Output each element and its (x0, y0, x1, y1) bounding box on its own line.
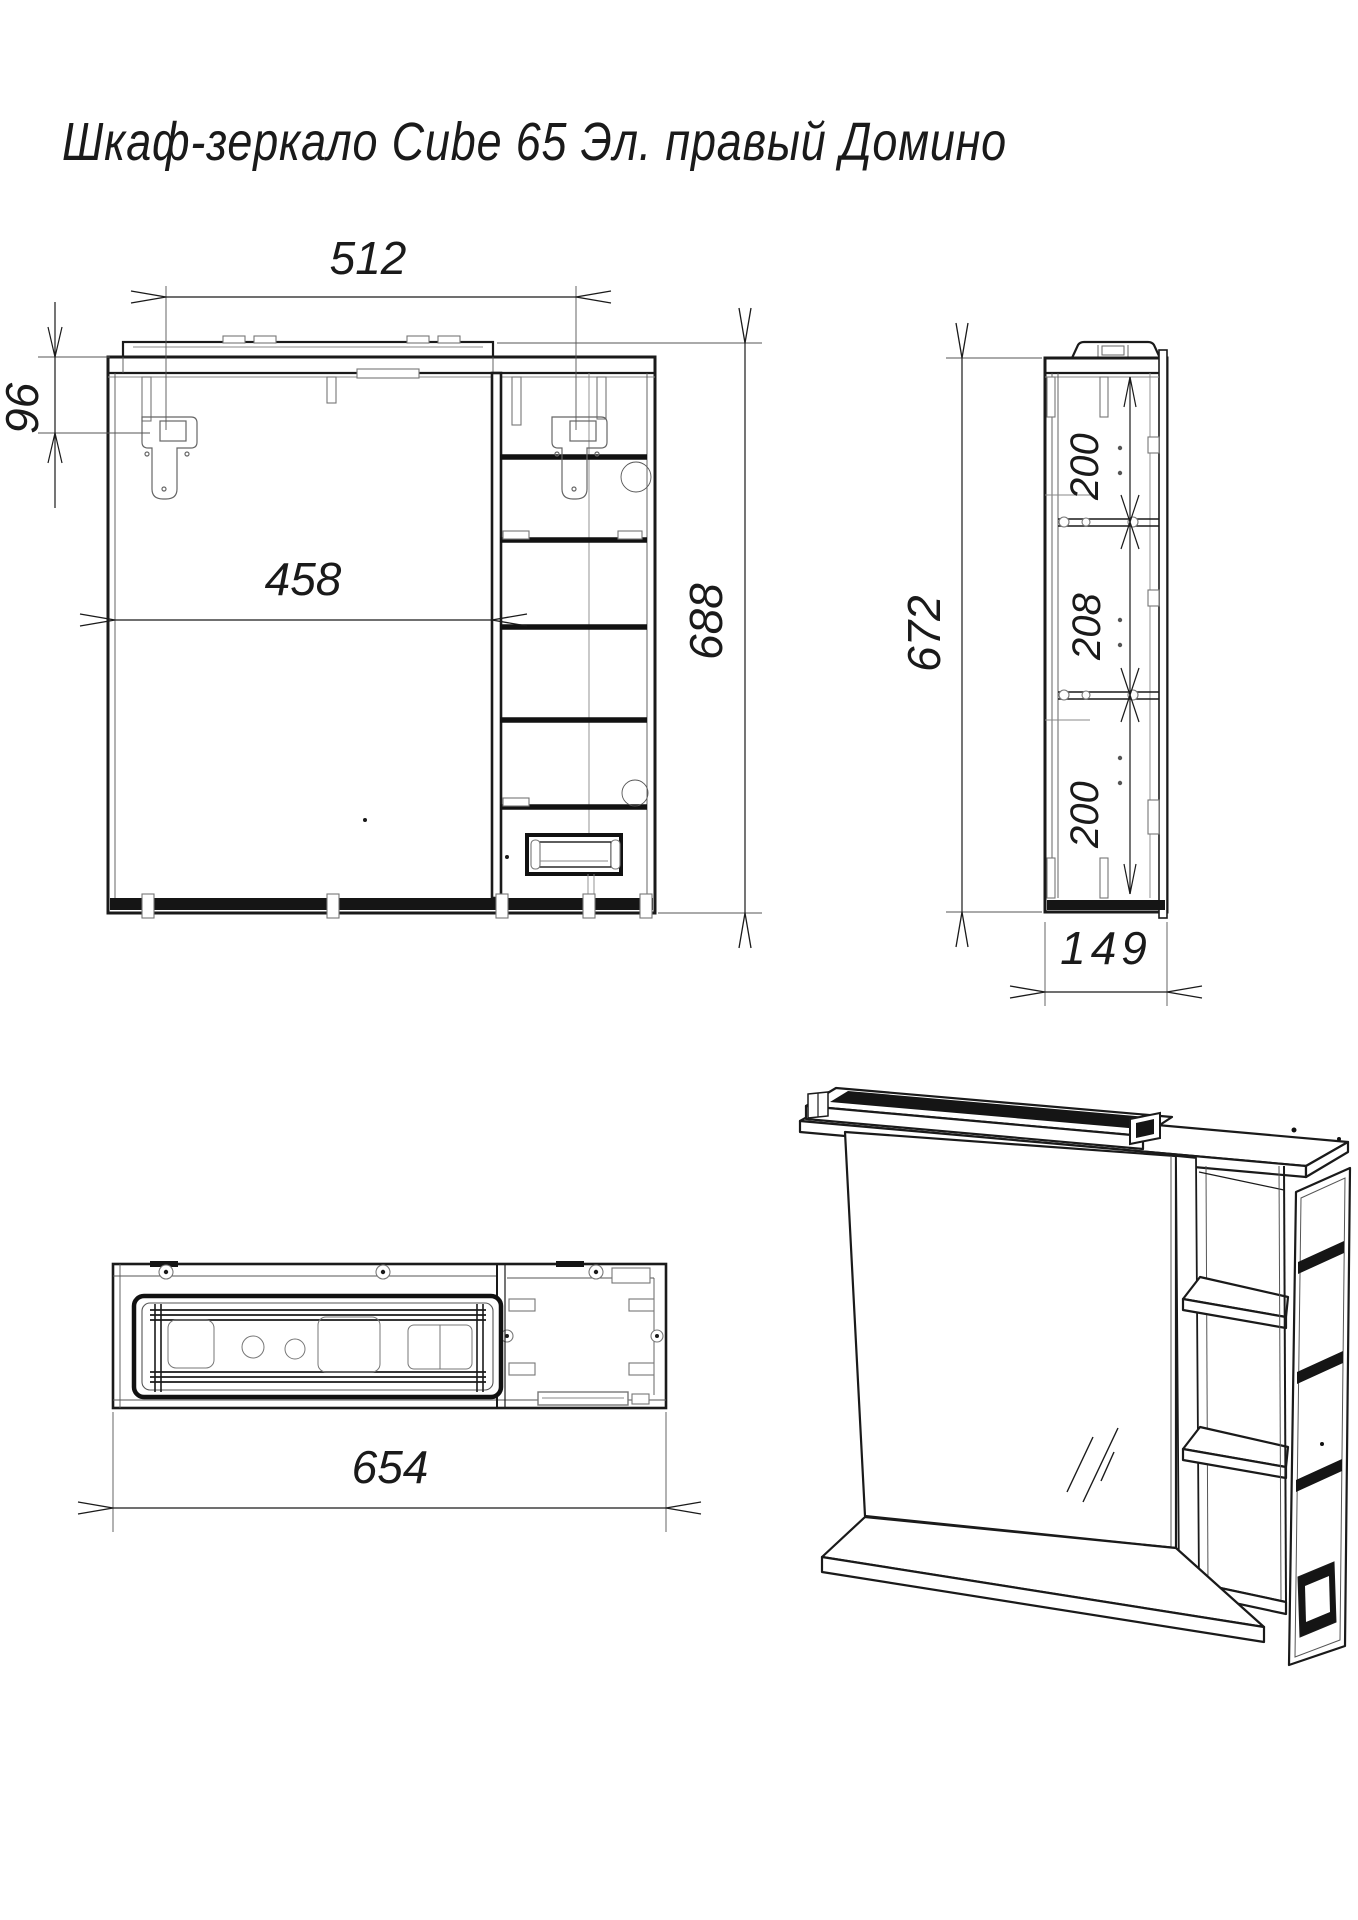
svg-text:672: 672 (898, 595, 950, 672)
side-cornice-cap (1072, 342, 1160, 358)
front-lamp-cornice (123, 336, 493, 357)
front-divider (492, 373, 501, 898)
svg-text:200: 200 (1063, 781, 1107, 849)
drawing-canvas: Шкаф-зеркало Cube 65 Эл. правый Домино (0, 0, 1358, 1920)
front-outline (108, 357, 655, 913)
title-block: Шкаф-зеркало Cube 65 Эл. правый Домино (62, 112, 1007, 172)
svg-text:688: 688 (680, 583, 732, 660)
svg-text:512: 512 (330, 232, 407, 284)
svg-text:458: 458 (265, 553, 342, 605)
front-latch-plate (357, 369, 419, 378)
svg-text:149: 149 (1060, 922, 1152, 974)
front-plinth (110, 898, 653, 910)
iso-side-panel (1289, 1168, 1350, 1665)
dim-side-depth: 149 (1045, 922, 1167, 1006)
iso-shelf-column (1176, 1156, 1288, 1614)
drawing-title: Шкаф-зеркало Cube 65 Эл. правый Домино (62, 112, 1007, 172)
svg-text:654: 654 (352, 1441, 429, 1493)
iso-mirror-door (845, 1132, 1176, 1548)
plan-view: 654 (113, 1261, 666, 1532)
svg-text:96: 96 (0, 382, 48, 434)
svg-text:208: 208 (1065, 593, 1109, 661)
dim-side-total-height: 672 (898, 358, 1042, 912)
drawing-page: Шкаф-зеркало Cube 65 Эл. правый Домино (0, 0, 1358, 1920)
side-door-edge (1159, 350, 1167, 918)
front-view: 512 96 458 688 (0, 232, 762, 918)
iso-view (800, 1088, 1350, 1665)
dim-plan-total-width: 654 (113, 1412, 666, 1532)
svg-text:200: 200 (1063, 433, 1107, 501)
plan-lamp-housing (134, 1296, 501, 1397)
side-view: 200 208 200 672 149 (898, 342, 1167, 1006)
side-plinth (1047, 900, 1165, 910)
